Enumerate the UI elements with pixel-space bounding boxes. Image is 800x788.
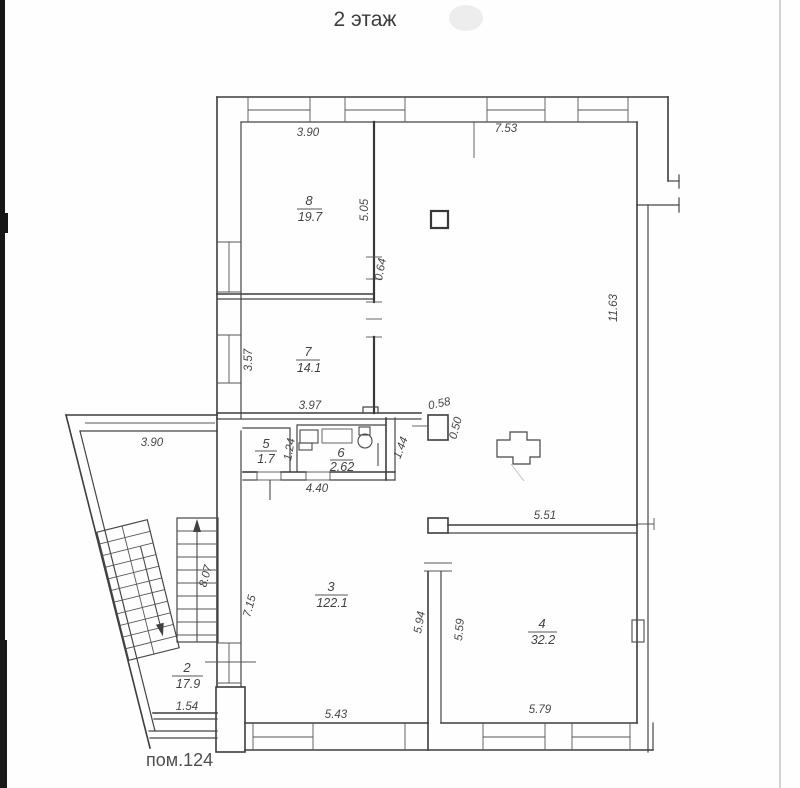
- room-8-number: 8: [305, 193, 313, 208]
- stair-flight-right: [177, 518, 218, 642]
- dim-room2-bottom: 1.54: [176, 701, 198, 713]
- column-small: [428, 415, 448, 440]
- dim-room4-top: 5.51: [534, 510, 556, 522]
- down-arrow: [140, 546, 162, 633]
- room-label-4: 4 32.2: [528, 616, 557, 647]
- room4-pier: [428, 518, 448, 533]
- dim-corridor-bottom: 4.40: [306, 483, 329, 495]
- floor-plan-scan: 2 этаж пом.124 8 19.7 7 14.1 5 1.7 6 2.6…: [0, 0, 800, 788]
- dim-room3-left: 7.15: [241, 593, 259, 618]
- dim-top-right: 7.53: [495, 123, 518, 135]
- column-cross: [497, 432, 540, 464]
- dim-bottom-right: 5.79: [529, 704, 552, 716]
- page-title: 2 этаж: [334, 8, 397, 31]
- room-7-number: 7: [304, 344, 312, 359]
- room-3-number: 3: [327, 579, 335, 594]
- scan-artifacts: [0, 0, 780, 788]
- room4-niche: [632, 620, 644, 642]
- dim-east-wall: 11.63: [608, 293, 620, 322]
- dim-room8-depth: 5.05: [359, 198, 371, 221]
- room-2-area: 17.9: [176, 677, 200, 691]
- dim-room7-left: 3.57: [243, 348, 255, 371]
- room-3-area: 122.1: [316, 596, 347, 610]
- diagonal-wall-inner: [80, 431, 155, 731]
- bottom-windows: [253, 723, 630, 750]
- room-label-7: 7 14.1: [296, 344, 321, 375]
- room-5-number: 5: [262, 436, 270, 451]
- left-windows: [217, 242, 241, 383]
- toilet: [358, 434, 372, 448]
- up-arrowhead: [193, 519, 201, 532]
- dim-pier: 0.64: [373, 257, 389, 281]
- scan-line: [511, 464, 524, 481]
- sink-side: [299, 443, 312, 450]
- room-2-number: 2: [182, 660, 191, 675]
- room-5-area: 1.7: [257, 452, 275, 466]
- room-6-area: 2.62: [329, 460, 354, 474]
- scan-edge-blob2: [0, 640, 7, 788]
- counter: [322, 429, 352, 443]
- scan-smudge: [449, 5, 483, 31]
- walls: [66, 97, 679, 752]
- room-4-number: 4: [538, 616, 545, 631]
- dim-top-left: 3.90: [297, 127, 320, 139]
- door-jamb: [257, 472, 281, 480]
- room-label-3: 3 122.1: [315, 579, 348, 610]
- dim-room4-left: 5.59: [453, 617, 467, 641]
- room-label-5: 5 1.7: [255, 436, 277, 466]
- fixtures: [299, 211, 540, 481]
- dim-column-width: 0.58: [427, 396, 452, 413]
- corner-pier: [216, 687, 245, 752]
- room-label-2: 2 17.9: [172, 660, 203, 691]
- room-7-area: 14.1: [297, 361, 321, 375]
- dim-room6-left: 1.24: [282, 437, 298, 461]
- stair-flight-left: [97, 520, 179, 661]
- dim-bottom-left: 5.43: [325, 709, 348, 721]
- dim-column-height: 0.50: [447, 415, 465, 440]
- dim-room3-right: 5.94: [412, 610, 428, 634]
- room-label-8: 8 19.7: [297, 193, 323, 224]
- room-8-area: 19.7: [298, 210, 323, 224]
- room-label-6: 6 2.62: [329, 445, 354, 474]
- floor-plan-drawing: 2 этаж пом.124 8 19.7 7 14.1 5 1.7 6 2.6…: [0, 0, 800, 788]
- dim-room7-bottom: 3.97: [299, 400, 322, 412]
- down-arrowhead: [156, 623, 167, 638]
- dim-wing-top: 3.90: [141, 437, 164, 449]
- dim-stairs: 8.07: [197, 563, 215, 588]
- footer-label: пом.124: [146, 750, 213, 770]
- scan-edge-blob: [0, 213, 8, 233]
- room-6-number: 6: [337, 445, 345, 460]
- top-windows: [248, 97, 628, 122]
- door-jamb: [306, 472, 330, 480]
- stairs: [97, 518, 218, 660]
- sink: [300, 430, 318, 443]
- room-4-area: 32.2: [531, 633, 555, 647]
- column-square: [431, 211, 448, 228]
- diagonal-wall-outer: [66, 415, 150, 748]
